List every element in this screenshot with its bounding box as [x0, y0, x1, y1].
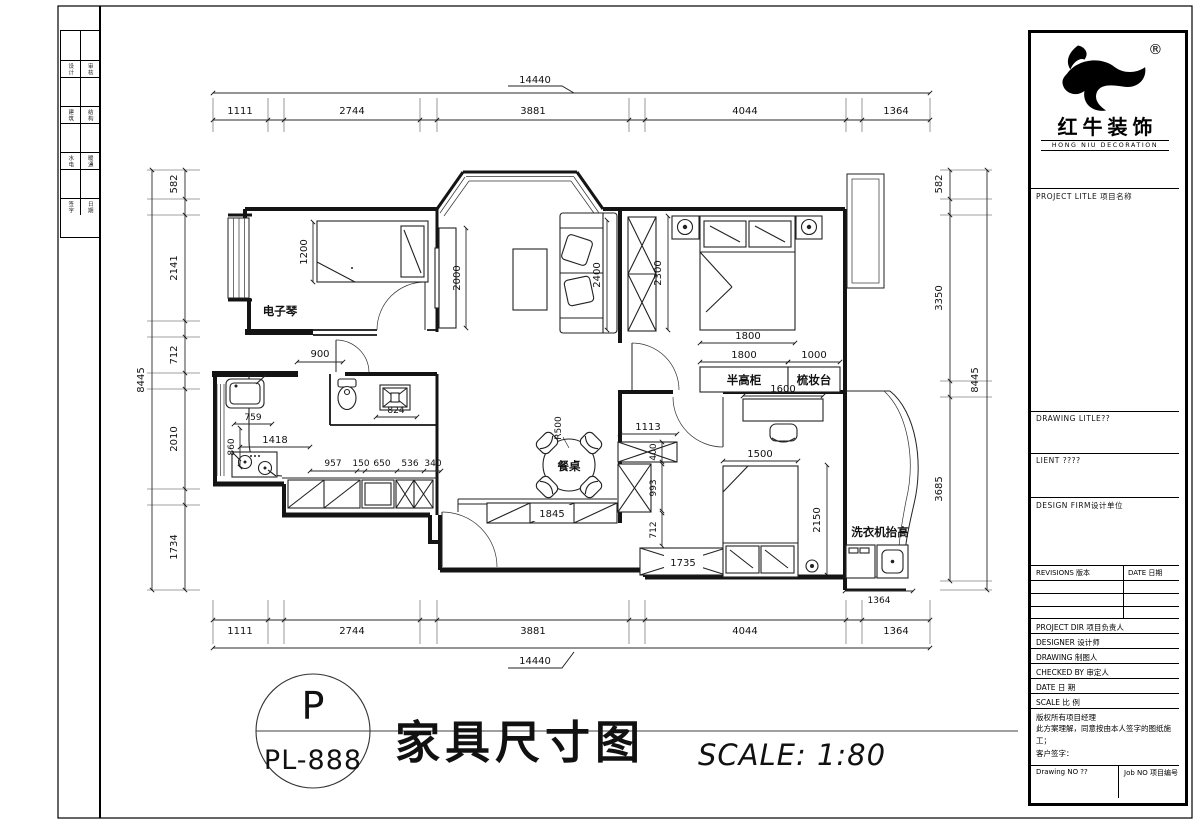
dim-bottom-5: 1364: [883, 626, 908, 637]
tb-drawing-by: DRAWING 制图人: [1031, 648, 1179, 663]
strip-label: 水电: [61, 153, 80, 169]
strip-cell: [61, 170, 80, 198]
bedroom1-furniture: [628, 216, 840, 392]
dim-wardrobe1: 2300: [653, 260, 664, 285]
door-bedroom2: [377, 282, 425, 330]
dim-bottom-4: 4044: [732, 626, 757, 637]
dim-cab2: 1000: [801, 350, 826, 361]
dim-left-4: 2010: [169, 426, 180, 451]
dim-bed1: 1800: [735, 331, 760, 342]
dim-right-overall: 8445: [970, 367, 981, 392]
tb-revisions: REVISIONS 版本: [1031, 566, 1123, 580]
strip-label: 暖通: [80, 153, 100, 169]
tb-job-no: Job NO 项目编号: [1119, 766, 1178, 798]
company-logo: ® 红牛装饰 HONG NIU DECORATION: [1031, 33, 1179, 188]
tb-designer: DESIGNER 设计师: [1031, 633, 1179, 648]
tb-drawing-title: DRAWING LITLE??: [1031, 412, 1179, 423]
dim-left-3: 712: [169, 345, 180, 364]
dim-hall-993: 993: [649, 479, 659, 496]
dim-shower-824: 824: [387, 406, 404, 416]
strip-cell: [80, 170, 100, 198]
tb-drawing-no: Drawing NO ??: [1031, 766, 1119, 798]
dim-right-2: 3350: [934, 285, 945, 310]
tb-checked-by: CHECKED BY 审定人: [1031, 663, 1179, 678]
kitchen-window: [217, 384, 224, 476]
tb-design-firm: DESIGN FIRM设计单位: [1031, 498, 1179, 511]
door-bedroom1: [632, 343, 679, 390]
dim-c-536: 536: [401, 459, 418, 469]
tb-scale: SCALE 比 例: [1031, 693, 1179, 708]
strip-cell: [80, 78, 100, 106]
strip-label: 建筑: [61, 107, 80, 123]
label-dining-table: 餐桌: [557, 459, 581, 473]
dim-top-4: 4044: [732, 106, 757, 117]
strip-label: 审核: [80, 61, 100, 77]
stamp-code: PL-888: [264, 745, 362, 776]
strip-label: 日期: [80, 199, 100, 215]
label-half-cabinet: 半高柜: [727, 373, 762, 387]
dim-c-150: 150: [352, 459, 369, 469]
dim-bed3-w: 1500: [747, 449, 772, 460]
dim-right-3: 3685: [934, 476, 945, 501]
brand-name-en: HONG NIU DECORATION: [1041, 140, 1169, 151]
strip-cell: [61, 124, 80, 152]
dim-k-860: 860: [227, 438, 237, 455]
label-washer: 洗衣机抬高: [851, 525, 909, 539]
registered-mark: ®: [1148, 42, 1162, 58]
dim-top-2: 2744: [339, 106, 364, 117]
title-block: ® 红牛装饰 HONG NIU DECORATION PROJECT LITLE…: [1028, 30, 1188, 806]
dim-top-5: 1364: [883, 106, 908, 117]
tb-copyright-2: 此方案理解，同意按由本人签字的图纸施工；: [1036, 723, 1175, 746]
label-piano: 电子琴: [263, 304, 298, 318]
dim-left-1: 582: [169, 174, 180, 193]
stamp-letter: P: [302, 684, 325, 728]
balcony-top-right: [847, 174, 884, 288]
dim-cab1: 1800: [731, 350, 756, 361]
dim-hall-1113: 1113: [635, 422, 660, 433]
revision-row: [1031, 580, 1179, 593]
drawing-sheet: 14440 1111 2744 3881 4044 1364 1111 2744…: [0, 0, 1200, 824]
dim-bottom-overall: 14440: [519, 656, 551, 667]
bull-logo-icon: ®: [1045, 39, 1165, 117]
bedroom2-furniture: [317, 221, 456, 328]
dim-bottom-1: 1111: [227, 626, 252, 637]
strip-cell: [61, 78, 80, 106]
scale-note: SCALE: 1:80: [698, 738, 886, 772]
tb-client: LIENT ????: [1031, 454, 1179, 465]
strip-label: 设计: [61, 61, 80, 77]
strip-cell: [80, 31, 100, 60]
label-radius: R500: [554, 416, 564, 440]
tb-project-title: PROJECT LITLE 项目名称: [1031, 189, 1179, 202]
dim-right-1: 582: [934, 174, 945, 193]
dim-tv: 2000: [452, 265, 463, 290]
label-dresser: 梳妆台: [797, 373, 832, 387]
revision-row: [1031, 593, 1179, 606]
dim-c-957: 957: [324, 459, 341, 469]
dim-hall-400: 400: [649, 443, 659, 460]
tb-date-col: DATE 日期: [1123, 566, 1162, 580]
dim-left-2: 2141: [169, 255, 180, 280]
dim-bed3-l: 2150: [812, 507, 823, 532]
dim-balcony-1364: 1364: [868, 596, 891, 606]
dim-c-340: 340: [424, 459, 441, 469]
dim-bottom-3: 3881: [520, 626, 545, 637]
dim-bottom-2: 2744: [339, 626, 364, 637]
strip-cell: [61, 31, 80, 60]
floorplan-canvas: 14440 1111 2744 3881 4044 1364 1111 2744…: [0, 0, 1200, 824]
dim-k-1418: 1418: [262, 435, 287, 446]
strip-label: 签字: [61, 199, 80, 215]
binding-strip: 设计审核 建筑结构 水电暖通 签字日期: [60, 30, 100, 238]
tb-project-dir: PROJECT DIR 项目负责人: [1031, 618, 1179, 633]
dim-hall-712: 712: [649, 521, 659, 538]
strip-cell: [80, 124, 100, 152]
dim-top-overall: 14440: [519, 75, 551, 86]
dim-hall-1735: 1735: [670, 558, 695, 569]
tb-signature: 客户签字：: [1036, 748, 1175, 759]
hall-closets: [618, 442, 726, 575]
door-bedroom3: [673, 397, 723, 447]
door-bathroom: [336, 340, 369, 372]
bedroom3-furniture: [723, 399, 823, 577]
tb-date: DATE 日 期: [1031, 678, 1179, 693]
dim-desk: 1600: [770, 384, 795, 395]
brand-name: 红牛装饰: [1031, 117, 1179, 137]
dim-sofa: 2400: [592, 262, 603, 287]
dim-left-overall: 8445: [136, 367, 147, 392]
dim-left-5: 1734: [169, 534, 180, 559]
window-bay-left: [228, 215, 252, 300]
dim-k-759: 759: [244, 413, 261, 423]
sheet-frame: [58, 6, 1192, 818]
dim-kitchen-door: 900: [310, 349, 329, 360]
strip-label: 结构: [80, 107, 100, 123]
dim-top-3: 3881: [520, 106, 545, 117]
dim-c-650: 650: [373, 459, 390, 469]
tb-copyright-1: 版权所有项目经理: [1036, 712, 1175, 723]
laundry-fixtures: [846, 545, 908, 578]
dim-top-1: 1111: [227, 106, 252, 117]
dim-bed2: 1200: [299, 239, 310, 264]
dim-shoe-1845: 1845: [539, 509, 564, 520]
drawing-title: 家具尺寸图: [395, 716, 645, 769]
